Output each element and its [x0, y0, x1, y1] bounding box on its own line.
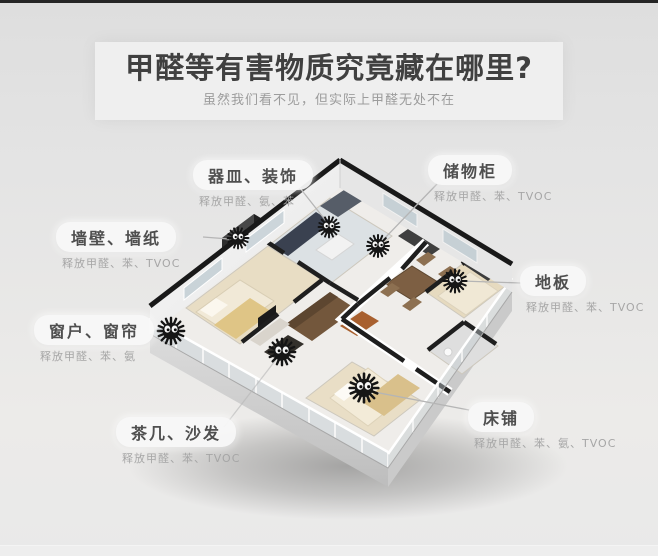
soot-sprite-icon	[158, 318, 184, 344]
callout-release-text: 释放甲醛、苯、氨、TVOC	[474, 435, 616, 451]
callout-label-pill: 窗户、窗帘	[34, 315, 154, 345]
soot-sprite-icon	[269, 339, 295, 365]
callout-release-text: 释放甲醛、苯、氨	[40, 348, 154, 364]
callout-release-text: 释放甲醛、氨、苯	[199, 193, 313, 209]
callout-release-text: 释放甲醛、苯、TVOC	[62, 255, 180, 271]
callout-release-text: 释放甲醛、苯、TVOC	[122, 450, 240, 466]
callout-windows-curtains: 窗户、窗帘 释放甲醛、苯、氨	[34, 315, 154, 364]
soot-sprite-icon	[319, 217, 340, 238]
callout-coffee-table-sofa: 茶几、沙发 释放甲醛、苯、TVOC	[116, 417, 240, 466]
callout-bed: 床铺 释放甲醛、苯、氨、TVOC	[468, 402, 616, 451]
callout-release-text: 释放甲醛、苯、TVOC	[526, 299, 644, 315]
callout-label-pill: 床铺	[468, 402, 534, 432]
callout-storage-cabinet: 储物柜 释放甲醛、苯、TVOC	[428, 155, 552, 204]
callout-label-pill: 地板	[520, 266, 586, 296]
callout-label-pill: 器皿、装饰	[193, 160, 313, 190]
callout-release-text: 释放甲醛、苯、TVOC	[434, 188, 552, 204]
callout-floor: 地板 释放甲醛、苯、TVOC	[520, 266, 644, 315]
soot-sprite-icon	[443, 269, 466, 292]
infographic-page: 甲醛等有害物质究竟藏在哪里? 虽然我们看不见，但实际上甲醛无处不在	[0, 0, 658, 556]
soot-sprite-icon	[367, 235, 389, 257]
soot-sprite-icon	[228, 228, 249, 249]
callout-label-pill: 茶几、沙发	[116, 417, 236, 447]
callout-label-pill: 储物柜	[428, 155, 512, 185]
callout-vessels-decorations: 器皿、装饰 释放甲醛、氨、苯	[193, 160, 313, 209]
soot-sprite-icon	[350, 374, 379, 403]
callout-walls-wallpaper: 墙壁、墙纸 释放甲醛、苯、TVOC	[56, 222, 180, 271]
callout-label-pill: 墙壁、墙纸	[56, 222, 176, 252]
